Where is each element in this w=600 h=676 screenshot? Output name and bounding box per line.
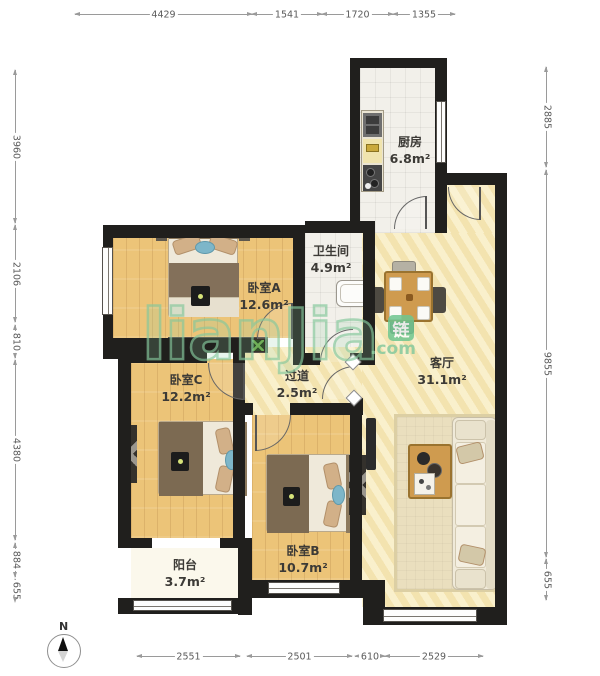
room-area: 4.9m²	[311, 260, 352, 275]
dim-value: 2551	[174, 651, 202, 662]
dim-bottom-4: 2529	[385, 656, 483, 657]
dim-value: 655	[10, 579, 21, 601]
coffee-table	[408, 444, 452, 499]
wall	[220, 538, 252, 548]
wall	[363, 580, 385, 625]
wall	[350, 58, 360, 233]
dim-bottom-2: 2501	[247, 656, 352, 657]
dim-value: 655	[541, 568, 552, 590]
wall	[495, 173, 507, 625]
dim-value: 4429	[149, 9, 177, 20]
window-balcony	[133, 600, 232, 611]
dim-left-3: 810	[15, 325, 16, 358]
dim-right-1: 2885	[546, 67, 547, 167]
entry-door-leaf	[479, 187, 481, 220]
room-area: 6.8m²	[390, 151, 431, 166]
tv-panel	[366, 418, 376, 470]
kitchen-counter	[361, 110, 384, 192]
dim-value: 3960	[10, 132, 21, 160]
dim-value: 2885	[541, 103, 552, 131]
dim-left-2: 2106	[15, 225, 16, 322]
dim-left-4: 4380	[15, 360, 16, 540]
label-balcony: 阳台 3.7m²	[165, 558, 206, 590]
compass-north-label: N	[59, 620, 68, 633]
dim-bottom-1: 2551	[137, 656, 240, 657]
window-living	[383, 609, 477, 622]
dim-value: 610	[359, 651, 381, 662]
wall	[350, 403, 362, 598]
window-bedroom-a	[102, 247, 113, 315]
dim-value: 884	[10, 549, 21, 571]
dim-value: 810	[10, 330, 21, 352]
floorplan-canvas: 厨房 6.8m² 卫生间 4.9m² 卧室A 12.6m² 客厅 31.1m² …	[0, 0, 600, 676]
dim-value: 1720	[343, 9, 371, 20]
watermark-suffix: .com	[370, 339, 416, 359]
label-living: 客厅 31.1m²	[417, 356, 466, 388]
wall	[103, 225, 305, 238]
dim-value: 1541	[273, 9, 301, 20]
dim-value: 9855	[541, 349, 552, 377]
room-name: 卫生间	[313, 244, 349, 258]
room-area: 10.7m²	[278, 560, 327, 575]
label-bedroom-b: 卧室B 10.7m²	[278, 544, 327, 576]
room-name: 厨房	[398, 135, 422, 149]
room-name: 卧室B	[286, 544, 319, 558]
window-bedroom-b	[268, 582, 340, 594]
dim-left-6: 655	[15, 579, 16, 602]
kitchen-worktop	[363, 139, 382, 163]
room-area: 12.2m²	[161, 389, 210, 404]
wall	[118, 538, 152, 548]
dim-value: 1355	[410, 9, 438, 20]
watermark-logo: 链	[388, 315, 414, 341]
dim-bottom-3: 610	[355, 656, 385, 657]
label-bedroom-c: 卧室C 12.2m²	[161, 373, 210, 405]
compass: N	[40, 620, 86, 676]
wall	[350, 58, 447, 68]
dim-right-3: 655	[546, 559, 547, 600]
kitchen-sink	[363, 113, 382, 137]
room-name: 客厅	[430, 356, 454, 370]
dim-top-4: 1355	[393, 14, 455, 15]
dim-top-1: 4429	[75, 14, 252, 15]
compass-needle-icon	[58, 637, 68, 651]
room-area: 31.1m²	[417, 372, 466, 387]
watermark-brand: lianJia	[142, 300, 377, 370]
wall	[103, 225, 113, 247]
dim-right-2: 9855	[546, 170, 547, 557]
dim-value: 2529	[420, 651, 448, 662]
room-area: 3.7m²	[165, 574, 206, 589]
label-kitchen: 厨房 6.8m²	[390, 135, 431, 167]
bed-b	[266, 454, 352, 532]
room-name: 阳台	[173, 558, 197, 572]
dim-top-2: 1541	[252, 14, 322, 15]
bedroom-b-door-leaf	[255, 415, 257, 451]
wall	[118, 352, 131, 548]
dim-top-3: 1720	[322, 14, 393, 15]
label-bathroom: 卫生间 4.9m²	[311, 244, 352, 276]
dim-left-1: 3960	[15, 70, 16, 223]
dim-value: 2501	[285, 651, 313, 662]
sofa	[452, 417, 497, 590]
room-name: 卧室A	[247, 281, 280, 295]
compass-circle	[47, 634, 81, 668]
dim-value: 4380	[10, 436, 21, 464]
room-area: 2.5m²	[277, 385, 318, 400]
kitchen-stove	[363, 165, 382, 191]
kitchen-door-leaf	[425, 196, 427, 229]
wall	[240, 403, 253, 415]
compass-needle-tail-icon	[58, 651, 68, 662]
dim-value: 2106	[10, 259, 21, 287]
window-kitchen	[436, 101, 446, 163]
dim-left-5: 884	[15, 543, 16, 577]
